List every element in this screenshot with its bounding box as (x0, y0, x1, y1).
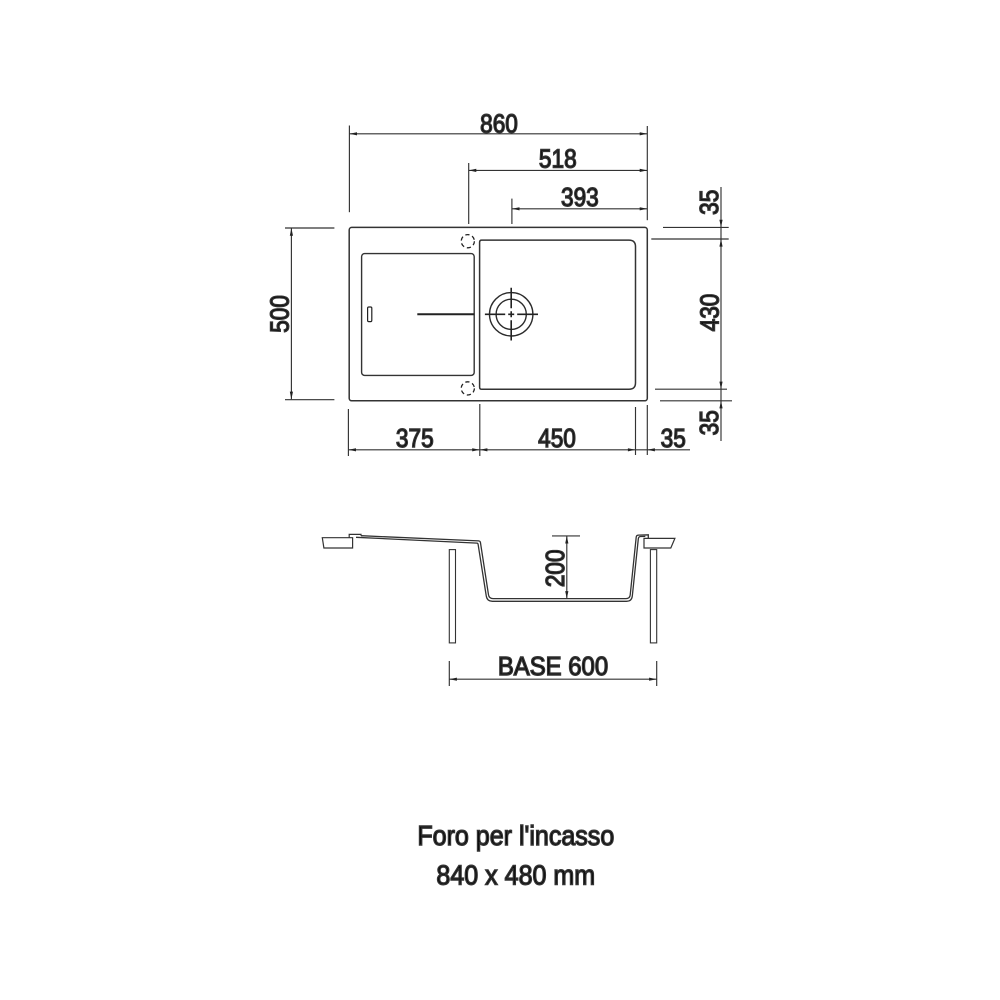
svg-text:393: 393 (561, 183, 599, 212)
svg-text:430: 430 (696, 294, 725, 332)
svg-text:518: 518 (539, 145, 577, 174)
svg-text:840 x 480 mm: 840 x 480 mm (436, 859, 595, 891)
svg-text:Foro per l'incasso: Foro per l'incasso (417, 820, 614, 852)
svg-text:860: 860 (480, 110, 518, 139)
svg-text:500: 500 (266, 295, 295, 333)
svg-text:375: 375 (396, 424, 434, 453)
svg-text:200: 200 (542, 549, 571, 587)
svg-text:35: 35 (695, 190, 724, 215)
svg-text:450: 450 (538, 424, 576, 453)
svg-text:BASE 600: BASE 600 (498, 652, 608, 681)
svg-text:35: 35 (661, 424, 686, 453)
svg-text:35: 35 (695, 410, 724, 435)
